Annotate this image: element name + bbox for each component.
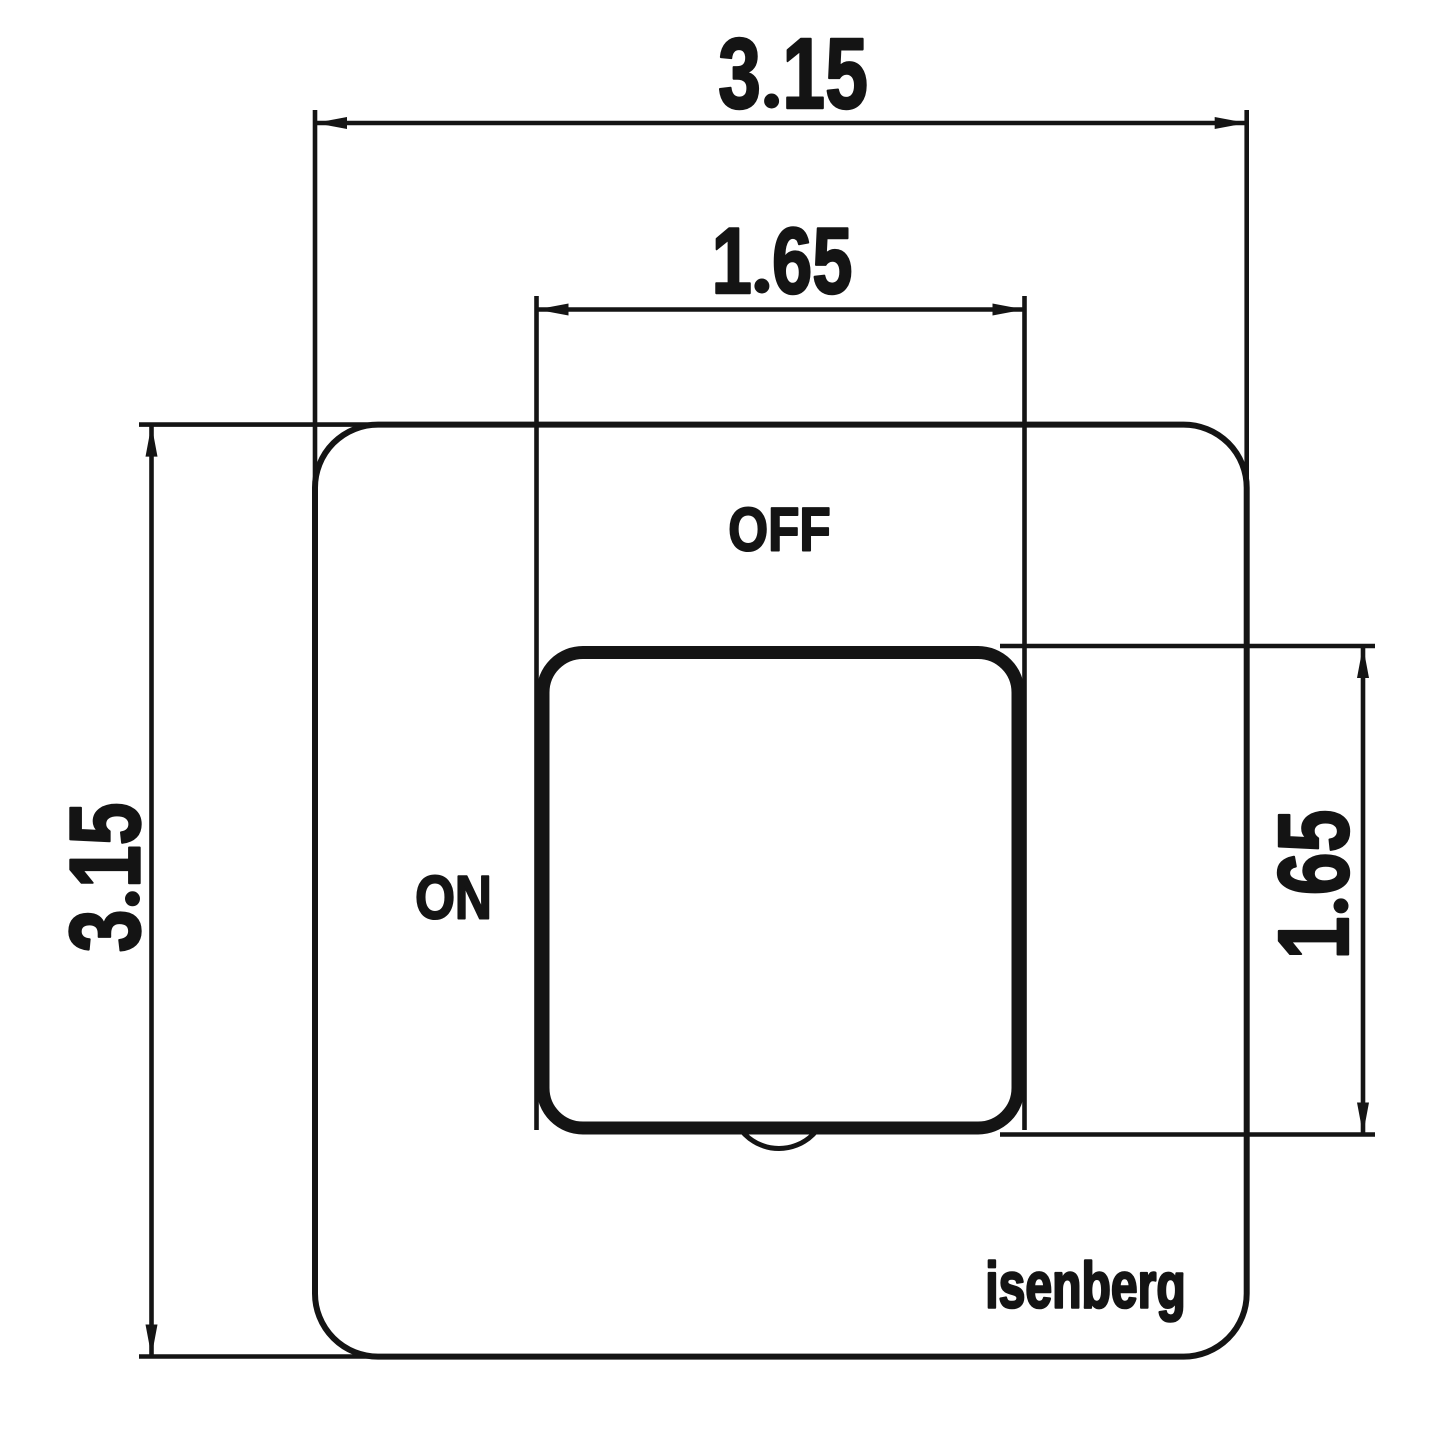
svg-text:ON: ON <box>415 863 492 931</box>
svg-text:OFF: OFF <box>728 495 830 563</box>
svg-text:1.65: 1.65 <box>1257 810 1369 960</box>
svg-text:1.65: 1.65 <box>712 208 853 313</box>
svg-text:3.15: 3.15 <box>718 17 868 129</box>
svg-text:3.15: 3.15 <box>49 802 161 952</box>
svg-text:isenberg: isenberg <box>985 1250 1185 1323</box>
